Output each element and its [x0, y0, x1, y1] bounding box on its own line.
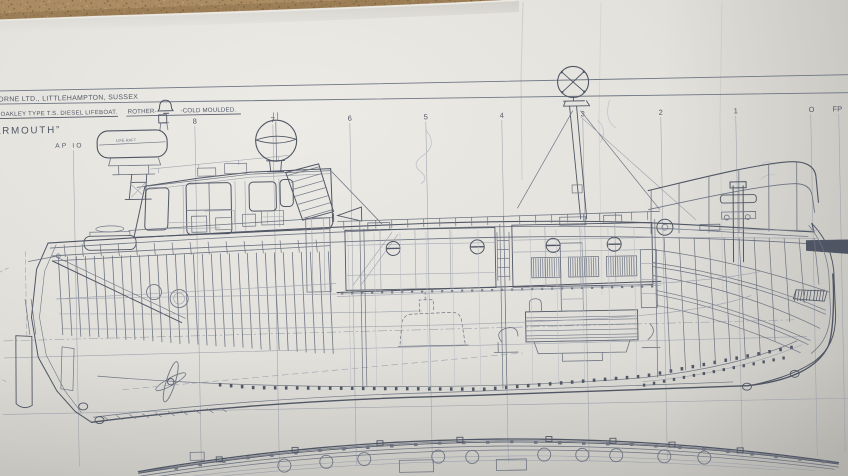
svg-text:-COLD MOULDED.: -COLD MOULDED. — [180, 106, 236, 114]
svg-text:FP: FP — [833, 104, 843, 113]
svg-text:8: 8 — [193, 117, 197, 126]
svg-text:1: 1 — [734, 106, 738, 115]
svg-text:ARMOUTH”: ARMOUTH” — [0, 125, 61, 137]
svg-text:6: 6 — [348, 114, 352, 123]
svg-text:ROTHER-: ROTHER- — [127, 108, 156, 116]
svg-text:4: 4 — [500, 111, 504, 120]
svg-text:LIFE RAFT: LIFE RAFT — [116, 137, 137, 142]
svg-text:5: 5 — [424, 112, 428, 121]
svg-text:AP IO: AP IO — [55, 142, 84, 150]
svg-text:O: O — [809, 105, 815, 114]
svg-text:2: 2 — [659, 108, 663, 117]
